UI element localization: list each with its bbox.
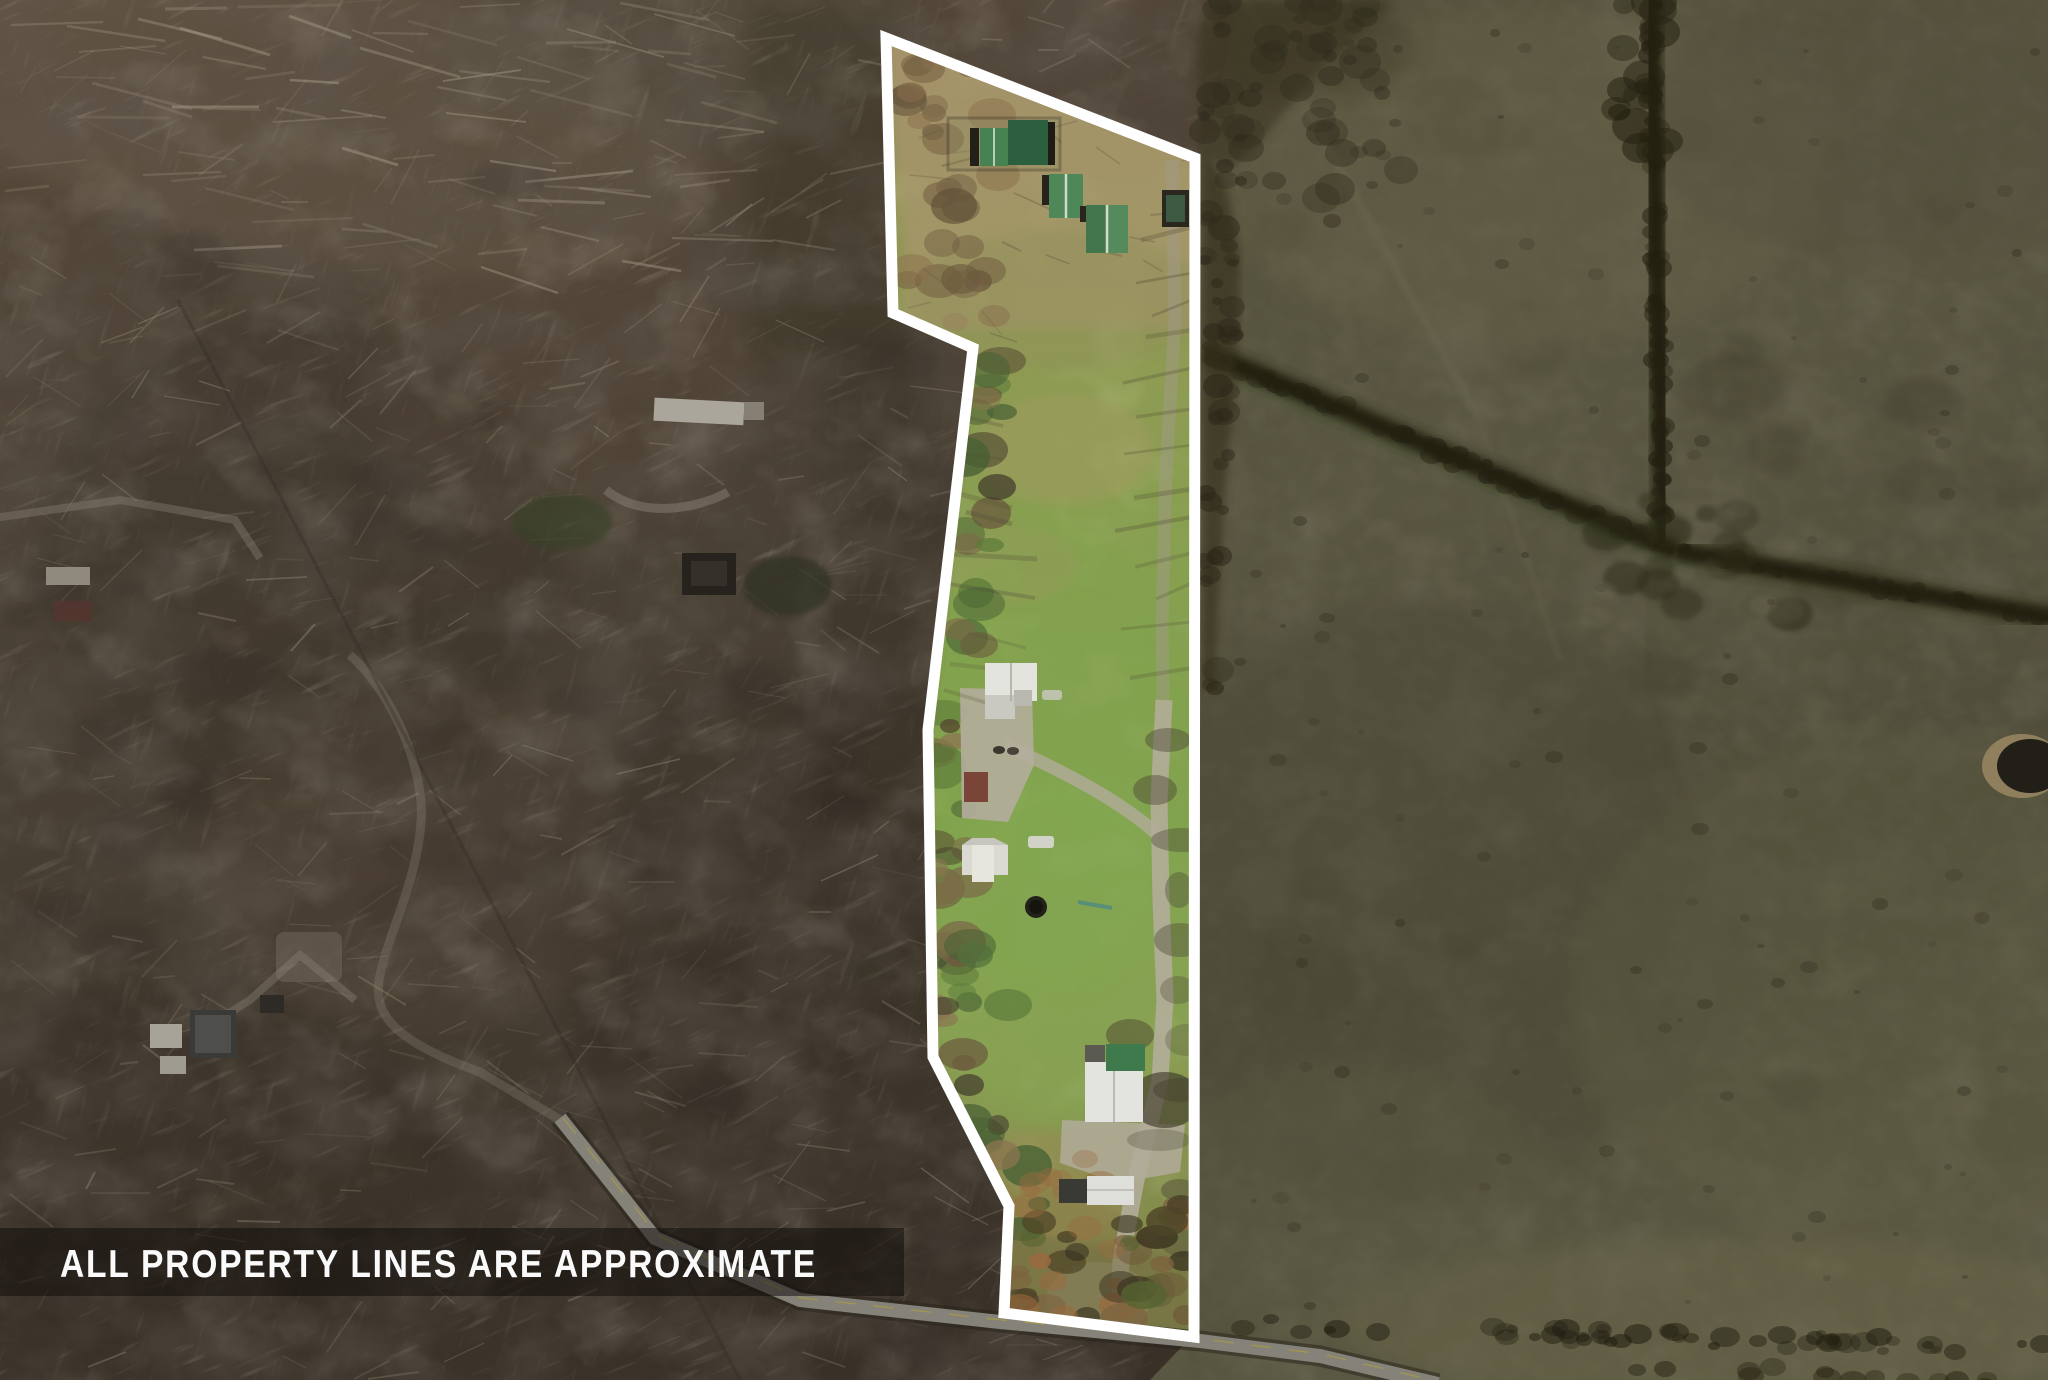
svg-text:ALL PROPERTY LINES ARE APPROXI: ALL PROPERTY LINES ARE APPROXIMATE (60, 1243, 817, 1286)
